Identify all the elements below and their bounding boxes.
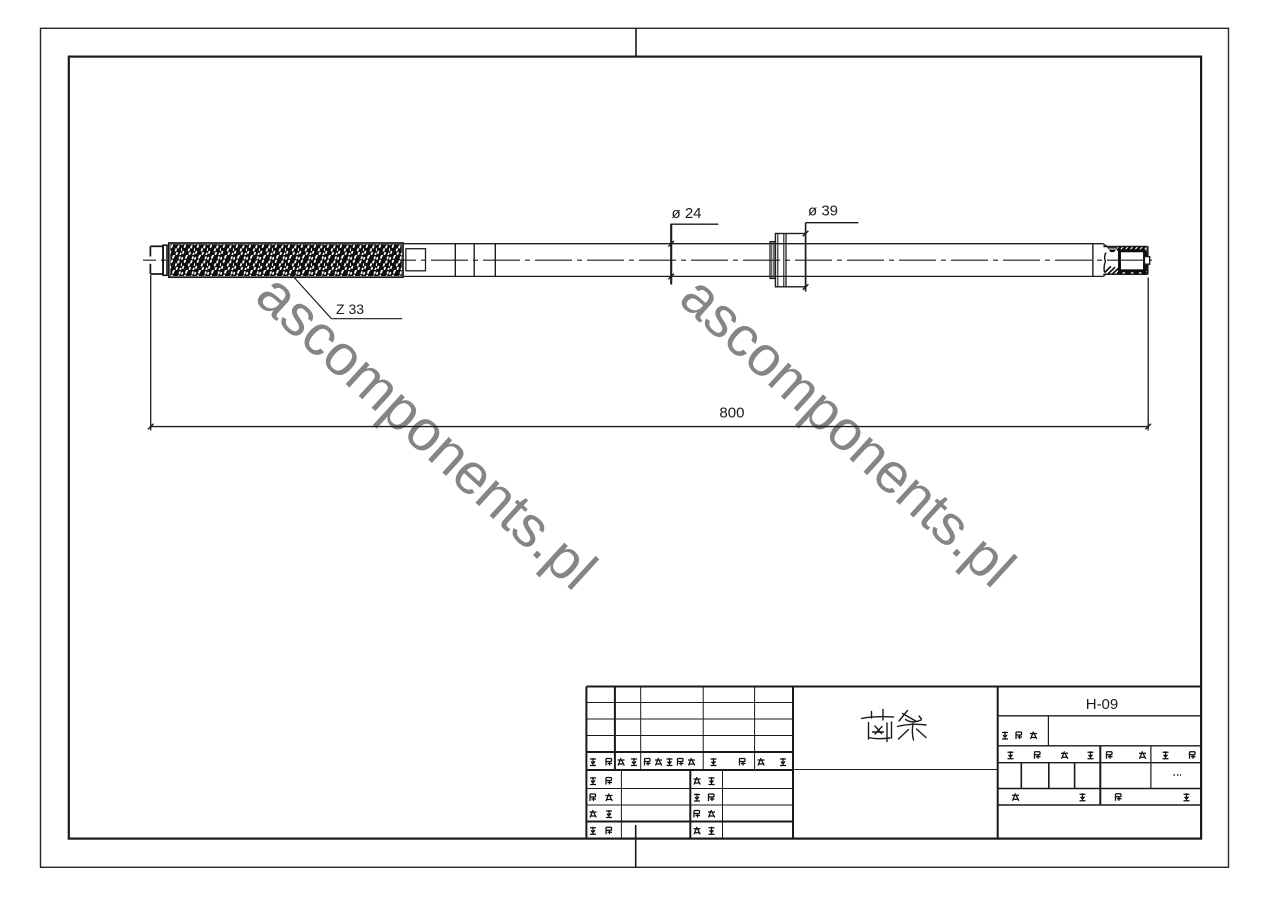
svg-text:Z 33: Z 33: [336, 301, 364, 317]
svg-text:ø 39: ø 39: [808, 203, 838, 220]
svg-text:ascomponents.pl: ascomponents.pl: [244, 262, 608, 602]
svg-text:H-09: H-09: [1086, 696, 1119, 713]
svg-text:800: 800: [719, 405, 744, 422]
svg-text:ascomponents.pl: ascomponents.pl: [669, 264, 1027, 599]
svg-text:ø 24: ø 24: [672, 205, 702, 222]
